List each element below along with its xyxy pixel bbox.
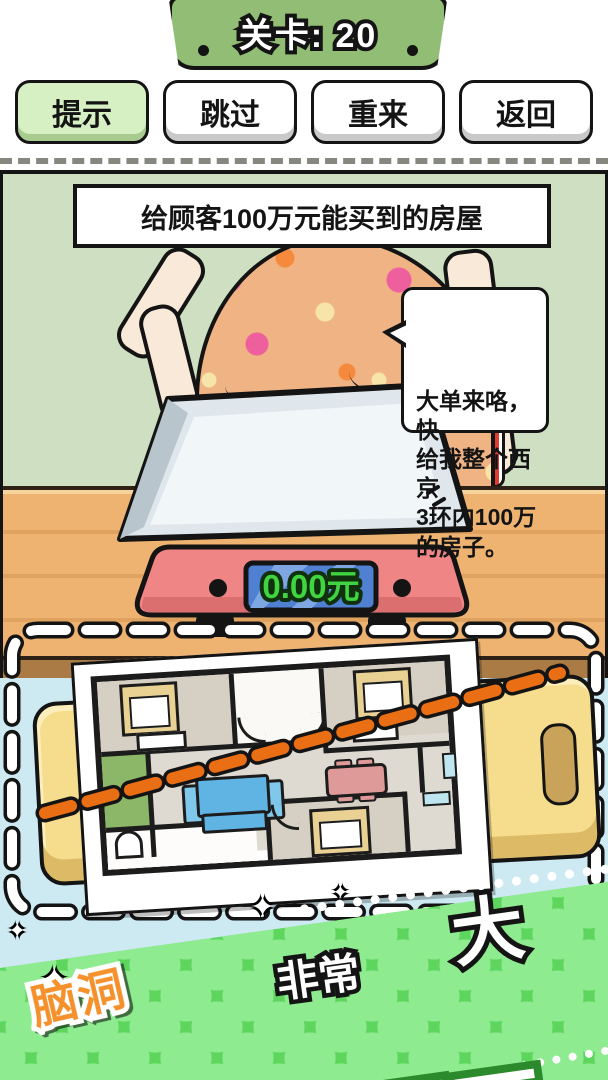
game-screen: 关卡: 20关卡: 20 提示 跳过 重来 返回 xyxy=(0,0,608,1080)
floorplan[interactable] xyxy=(91,655,463,877)
back-button[interactable]: 返回 xyxy=(459,80,593,144)
price-value: 0.00元 xyxy=(262,568,359,605)
scale-button-left[interactable] xyxy=(209,579,227,597)
level-banner: 关卡: 20关卡: 20 xyxy=(168,0,448,70)
shop-scene: 0.00元 0.00元 给顾客100万元能买到的房屋 大单来咯，快 给我整个西京… xyxy=(0,170,608,678)
floorplan-paper[interactable] xyxy=(71,638,494,916)
scale-button-right[interactable] xyxy=(393,579,411,597)
window xyxy=(422,791,451,807)
bed xyxy=(309,806,372,858)
banner-rivet-left xyxy=(198,45,209,56)
level-label: 关卡: 20关卡: 20 xyxy=(239,8,378,57)
sparkle-icon: ✦ xyxy=(8,918,26,944)
sofa xyxy=(201,810,268,834)
sparkle-icon: ✦ xyxy=(250,890,275,925)
dining-table xyxy=(324,763,388,799)
speech-bubble: 大单来咯，快 给我整个西京 3环内100万 的房子。 xyxy=(401,287,549,433)
task-banner: 给顾客100万元能买到的房屋 xyxy=(73,184,551,248)
retry-button[interactable]: 重来 xyxy=(311,80,445,144)
footer-tag-very: 非常非常 xyxy=(273,938,365,1010)
banner-rivet-right xyxy=(407,45,418,56)
footer-tag-big: 大大 xyxy=(444,867,530,981)
skip-button[interactable]: 跳过 xyxy=(163,80,297,144)
bed xyxy=(119,681,180,736)
bed xyxy=(353,667,414,720)
sparkle-icon: ✦ xyxy=(332,880,349,905)
rug xyxy=(136,731,187,752)
balcony-chair xyxy=(114,830,144,860)
hint-button[interactable]: 提示 xyxy=(15,80,149,144)
dresser xyxy=(352,720,399,743)
dashed-separator xyxy=(0,158,608,164)
phone-camera xyxy=(539,722,579,806)
window xyxy=(442,752,458,779)
scale-lid-glass xyxy=(150,403,444,525)
bubble-tail xyxy=(390,324,409,345)
toolbar: 提示 跳过 重来 返回 xyxy=(0,80,608,144)
